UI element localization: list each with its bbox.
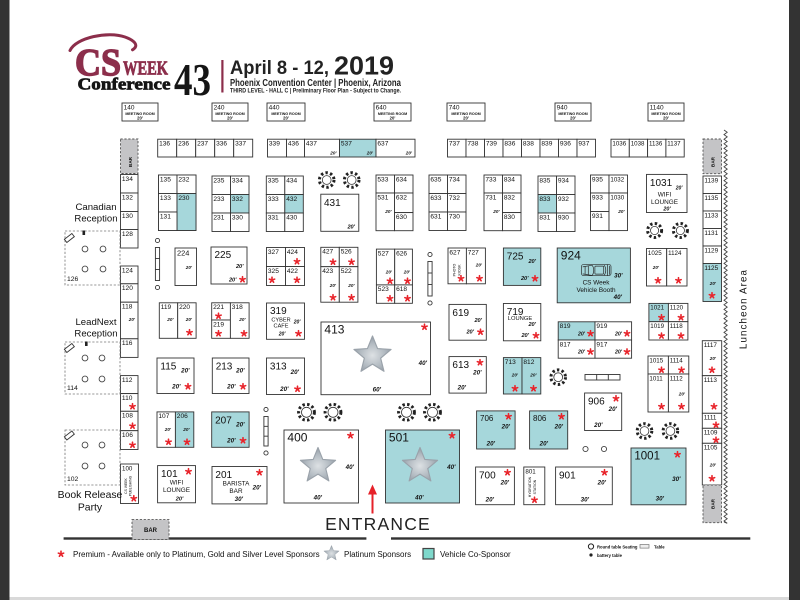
svg-text:526: 526 <box>341 249 352 256</box>
svg-text:HYDRATION: HYDRATION <box>528 476 532 497</box>
svg-text:732: 732 <box>449 195 460 202</box>
svg-text:20': 20' <box>465 330 474 336</box>
svg-text:BAR: BAR <box>711 498 716 509</box>
svg-text:20': 20' <box>164 427 172 432</box>
svg-text:20': 20' <box>709 356 717 361</box>
svg-text:CYBER: CYBER <box>271 318 290 324</box>
svg-text:LOUNGE: LOUNGE <box>651 199 678 206</box>
svg-text:336: 336 <box>216 141 227 148</box>
svg-text:1129: 1129 <box>704 247 718 254</box>
svg-text:334: 334 <box>232 177 243 184</box>
svg-text:917: 917 <box>596 341 607 348</box>
svg-text:834: 834 <box>504 176 515 183</box>
svg-text:700: 700 <box>479 471 496 482</box>
svg-text:501: 501 <box>389 431 409 445</box>
svg-text:20': 20' <box>171 384 181 391</box>
svg-text:522: 522 <box>341 268 352 275</box>
svg-text:30': 30' <box>614 273 623 280</box>
svg-text:20': 20' <box>709 463 717 468</box>
svg-text:20': 20' <box>226 438 236 445</box>
svg-text:106: 106 <box>122 432 133 439</box>
svg-text:Canadian: Canadian <box>75 202 116 213</box>
svg-text:618: 618 <box>396 286 407 293</box>
svg-text:1019: 1019 <box>650 323 664 330</box>
svg-text:836: 836 <box>504 141 515 148</box>
svg-text:937: 937 <box>578 141 589 148</box>
svg-text:134: 134 <box>122 176 133 183</box>
svg-text:20': 20' <box>570 116 576 121</box>
svg-text:20': 20' <box>235 368 245 375</box>
svg-text:537: 537 <box>341 141 352 148</box>
svg-text:1021: 1021 <box>650 305 664 312</box>
svg-text:935: 935 <box>592 176 603 183</box>
svg-text:833: 833 <box>539 196 550 203</box>
svg-text:Reception: Reception <box>74 329 117 340</box>
svg-text:20': 20' <box>554 424 564 431</box>
svg-text:100: 100 <box>122 466 133 473</box>
svg-text:Conference: Conference <box>78 75 171 94</box>
svg-text:1136: 1136 <box>649 141 663 148</box>
svg-text:1031: 1031 <box>650 178 673 189</box>
svg-text:831: 831 <box>539 214 550 221</box>
svg-text:237: 237 <box>197 141 208 148</box>
svg-text:30': 30' <box>235 496 244 503</box>
svg-text:20': 20' <box>384 209 392 214</box>
svg-text:BAR: BAR <box>711 156 716 167</box>
svg-text:440: 440 <box>269 105 280 112</box>
svg-text:20': 20' <box>137 116 143 121</box>
svg-text:1112: 1112 <box>670 375 683 382</box>
svg-text:133: 133 <box>160 195 171 202</box>
svg-text:533: 533 <box>377 176 388 183</box>
svg-text:130: 130 <box>122 213 133 220</box>
svg-text:20': 20' <box>475 263 483 268</box>
svg-text:STATION: STATION <box>533 479 537 494</box>
svg-text:1114: 1114 <box>670 357 683 364</box>
svg-text:KIOSK: KIOSK <box>458 264 462 276</box>
svg-text:1125: 1125 <box>704 265 718 272</box>
svg-text:906: 906 <box>588 397 605 408</box>
svg-text:632: 632 <box>396 194 407 201</box>
svg-text:531: 531 <box>377 194 388 201</box>
svg-text:839: 839 <box>541 141 552 148</box>
svg-text:233: 233 <box>213 196 224 203</box>
svg-text:232: 232 <box>178 176 189 183</box>
svg-text:20': 20' <box>577 350 586 356</box>
svg-text:20': 20' <box>128 317 136 322</box>
svg-text:339: 339 <box>269 141 280 148</box>
svg-text:20': 20' <box>529 373 537 378</box>
svg-text:634: 634 <box>396 176 407 183</box>
svg-text:20': 20' <box>235 264 244 270</box>
svg-text:battery table: battery table <box>597 553 623 558</box>
svg-text:213: 213 <box>216 362 233 373</box>
svg-text:PUBLISHING: PUBLISHING <box>128 475 132 496</box>
svg-text:1135: 1135 <box>704 195 718 202</box>
svg-text:1036: 1036 <box>612 141 626 148</box>
svg-text:20': 20' <box>390 116 396 121</box>
svg-text:431: 431 <box>324 198 341 209</box>
svg-text:30': 30' <box>656 496 665 503</box>
svg-text:40': 40' <box>613 294 623 301</box>
svg-text:224: 224 <box>177 249 189 258</box>
svg-text:Vehicle Booth: Vehicle Booth <box>576 287 616 294</box>
svg-text:20': 20' <box>227 116 233 121</box>
svg-text:931: 931 <box>592 213 603 220</box>
svg-text:731: 731 <box>485 194 496 201</box>
svg-text:1120: 1120 <box>670 305 684 312</box>
svg-text:335: 335 <box>268 177 279 184</box>
svg-text:727: 727 <box>468 249 479 256</box>
svg-text:830: 830 <box>504 214 515 221</box>
svg-text:1032: 1032 <box>610 176 624 183</box>
svg-text:235: 235 <box>213 177 224 184</box>
svg-text:40': 40' <box>418 360 428 367</box>
svg-text:Round table Seating: Round table Seating <box>597 545 638 550</box>
svg-text:Platinum Sponsors: Platinum Sponsors <box>344 550 411 559</box>
svg-text:107: 107 <box>158 413 169 420</box>
svg-text:631: 631 <box>430 213 441 220</box>
svg-text:20': 20' <box>617 209 625 214</box>
svg-text:120: 120 <box>122 285 133 292</box>
svg-text:20': 20' <box>235 422 245 429</box>
svg-text:20': 20' <box>485 497 495 504</box>
svg-text:835: 835 <box>539 177 550 184</box>
svg-text:1117: 1117 <box>704 342 718 349</box>
svg-text:ENTRANCE: ENTRANCE <box>325 514 431 534</box>
svg-text:20': 20' <box>366 151 374 156</box>
svg-text:20': 20' <box>520 333 529 339</box>
svg-text:Table: Table <box>654 545 665 550</box>
svg-text:20': 20' <box>663 116 669 121</box>
svg-text:20': 20' <box>614 332 623 338</box>
svg-text:934: 934 <box>558 177 569 184</box>
svg-text:115: 115 <box>160 362 176 373</box>
svg-text:Vehicle Co-Sponsor: Vehicle Co-Sponsor <box>440 550 511 559</box>
svg-text:838: 838 <box>523 141 534 148</box>
svg-text:20': 20' <box>527 322 536 328</box>
svg-text:207: 207 <box>215 415 232 426</box>
svg-text:20': 20' <box>226 384 236 391</box>
svg-text:230: 230 <box>178 195 189 202</box>
svg-text:2019: 2019 <box>334 53 394 81</box>
svg-text:20': 20' <box>403 270 411 275</box>
svg-text:1109: 1109 <box>704 430 718 437</box>
svg-text:20': 20' <box>472 370 482 377</box>
svg-text:706: 706 <box>480 414 494 423</box>
svg-text:CS WEEK: CS WEEK <box>124 477 128 493</box>
svg-text:325: 325 <box>268 268 279 275</box>
svg-text:430: 430 <box>286 214 297 221</box>
svg-text:20': 20' <box>283 116 289 121</box>
svg-text:118: 118 <box>122 304 133 311</box>
svg-text:Luncheon Area: Luncheon Area <box>739 269 750 349</box>
svg-text:225: 225 <box>215 250 232 261</box>
svg-text:240: 240 <box>214 105 225 112</box>
svg-text:313: 313 <box>270 362 287 373</box>
svg-text:413: 413 <box>324 323 344 337</box>
svg-text:20': 20' <box>501 424 511 431</box>
svg-text:901: 901 <box>559 471 576 482</box>
svg-text:20': 20' <box>347 283 355 288</box>
svg-text:20': 20' <box>608 406 618 413</box>
svg-text:136: 136 <box>159 141 170 148</box>
svg-text:1140: 1140 <box>650 105 664 112</box>
svg-text:613: 613 <box>452 360 469 371</box>
svg-text:40': 40' <box>313 495 323 502</box>
svg-text:119: 119 <box>161 304 172 311</box>
svg-text:20': 20' <box>662 207 671 213</box>
svg-text:434: 434 <box>286 177 297 184</box>
svg-text:930: 930 <box>558 214 569 221</box>
svg-text:124: 124 <box>122 267 133 274</box>
svg-text:221: 221 <box>213 304 224 311</box>
svg-text:733: 733 <box>485 176 496 183</box>
svg-text:330: 330 <box>232 214 243 221</box>
svg-text:20': 20' <box>527 259 536 265</box>
svg-text:110: 110 <box>122 395 133 402</box>
svg-text:1124: 1124 <box>668 250 682 257</box>
svg-text:20': 20' <box>385 270 393 275</box>
svg-text:20': 20' <box>180 368 190 375</box>
svg-text:Premium - Available only to Pl: Premium - Available only to Platinum, Go… <box>73 550 320 559</box>
svg-text:1025: 1025 <box>648 250 662 257</box>
svg-text:1001: 1001 <box>634 451 660 463</box>
svg-text:333: 333 <box>268 196 279 203</box>
svg-text:220: 220 <box>179 304 190 311</box>
svg-text:319: 319 <box>270 306 287 317</box>
svg-text:932: 932 <box>558 196 569 203</box>
svg-text:20': 20' <box>463 116 469 121</box>
svg-text:LeadNext: LeadNext <box>75 317 116 328</box>
svg-text:132: 132 <box>122 194 133 201</box>
svg-text:819: 819 <box>560 323 571 330</box>
svg-text:20': 20' <box>511 373 519 378</box>
svg-text:1113: 1113 <box>704 377 718 384</box>
svg-text:523: 523 <box>378 286 389 293</box>
svg-text:108: 108 <box>122 413 133 420</box>
svg-text:713: 713 <box>505 359 516 366</box>
svg-text:131: 131 <box>160 213 171 220</box>
svg-text:1131: 1131 <box>704 230 718 237</box>
svg-text:635: 635 <box>430 176 441 183</box>
svg-text:WIFI: WIFI <box>658 192 672 199</box>
svg-text:20': 20' <box>486 441 496 448</box>
svg-text:1133: 1133 <box>704 212 718 219</box>
svg-text:817: 817 <box>560 341 571 348</box>
svg-text:400: 400 <box>287 431 307 445</box>
svg-text:801: 801 <box>525 468 536 475</box>
svg-text:740: 740 <box>449 105 460 112</box>
svg-text:20': 20' <box>278 332 287 338</box>
svg-text:1105: 1105 <box>704 445 718 452</box>
svg-text:20': 20' <box>329 283 337 288</box>
svg-text:126: 126 <box>67 276 79 283</box>
svg-text:20': 20' <box>614 350 623 356</box>
svg-text:627: 627 <box>449 249 460 256</box>
svg-text:20': 20' <box>290 369 300 376</box>
svg-text:1038: 1038 <box>631 141 645 148</box>
svg-text:626: 626 <box>396 250 407 257</box>
svg-text:116: 116 <box>122 340 133 347</box>
svg-text:BAR: BAR <box>144 528 158 534</box>
svg-text:527: 527 <box>378 250 389 257</box>
svg-text:432: 432 <box>286 196 297 203</box>
svg-text:318: 318 <box>232 304 243 311</box>
svg-text:THIRD LEVEL - HALL C | Preli: THIRD LEVEL - HALL C | Preliminary Floor… <box>230 88 401 95</box>
svg-text:Reception: Reception <box>74 214 117 225</box>
svg-text:CAFE: CAFE <box>274 324 289 330</box>
svg-text:940: 940 <box>557 105 568 112</box>
svg-text:919: 919 <box>596 323 607 330</box>
svg-text:40': 40' <box>446 464 456 471</box>
svg-text:20': 20' <box>175 497 184 503</box>
svg-text:114: 114 <box>67 385 78 392</box>
svg-text:1137: 1137 <box>667 141 681 148</box>
svg-text:140: 140 <box>124 105 135 112</box>
svg-text:201: 201 <box>215 470 232 481</box>
svg-text:1139: 1139 <box>704 177 718 184</box>
svg-text:231: 231 <box>213 214 224 221</box>
svg-text:738: 738 <box>467 141 478 148</box>
svg-text:1111: 1111 <box>704 415 717 422</box>
svg-text:436: 436 <box>288 141 299 148</box>
svg-text:PHOTO: PHOTO <box>453 263 457 276</box>
svg-text:832: 832 <box>504 194 515 201</box>
svg-text:20': 20' <box>597 480 607 487</box>
svg-text:206: 206 <box>177 413 188 420</box>
svg-text:20': 20' <box>652 265 660 270</box>
svg-text:43: 43 <box>174 55 211 105</box>
svg-text:BAR: BAR <box>229 488 243 495</box>
svg-text:737: 737 <box>449 141 460 148</box>
svg-text:734: 734 <box>449 176 460 183</box>
svg-text:812: 812 <box>523 359 534 366</box>
svg-text:20': 20' <box>293 320 302 326</box>
svg-text:637: 637 <box>377 141 388 148</box>
svg-text:331: 331 <box>268 214 279 221</box>
svg-text:20': 20' <box>457 385 467 392</box>
svg-text:806: 806 <box>533 414 547 423</box>
svg-text:20': 20' <box>539 441 549 448</box>
svg-text:20': 20' <box>577 332 586 338</box>
svg-text:40': 40' <box>414 495 424 502</box>
svg-text:1118: 1118 <box>670 323 683 330</box>
svg-text:630: 630 <box>396 214 407 221</box>
svg-text:Party: Party <box>78 503 103 514</box>
svg-text:LOUNGE: LOUNGE <box>163 487 190 494</box>
svg-text:20': 20' <box>709 281 717 286</box>
svg-text:112: 112 <box>122 377 133 384</box>
svg-text:619: 619 <box>452 308 469 319</box>
svg-text:20': 20' <box>405 151 413 156</box>
svg-text:20': 20' <box>185 265 193 270</box>
svg-text:422: 422 <box>287 268 298 275</box>
svg-text:April 8 - 12,: April 8 - 12, <box>230 58 329 79</box>
svg-text:933: 933 <box>592 194 603 201</box>
svg-text:20': 20' <box>228 278 237 284</box>
svg-text:20': 20' <box>238 317 246 322</box>
svg-text:20': 20' <box>166 317 174 322</box>
svg-text:Book Release: Book Release <box>58 490 123 501</box>
svg-text:332: 332 <box>232 196 243 203</box>
svg-text:327: 327 <box>268 249 279 256</box>
svg-text:60': 60' <box>373 387 382 394</box>
svg-text:30': 30' <box>672 476 681 483</box>
svg-text:20': 20' <box>279 386 289 393</box>
svg-text:337: 337 <box>235 141 246 148</box>
svg-text:427: 427 <box>322 249 333 256</box>
svg-text:1011: 1011 <box>649 375 663 382</box>
svg-text:WIFI: WIFI <box>170 480 184 487</box>
svg-text:20': 20' <box>346 225 355 231</box>
svg-text:30': 30' <box>581 497 590 504</box>
svg-text:1015: 1015 <box>649 357 663 364</box>
svg-text:135: 135 <box>160 176 171 183</box>
svg-text:424: 424 <box>287 249 298 256</box>
svg-text:219: 219 <box>213 321 224 328</box>
svg-text:20': 20' <box>329 151 337 156</box>
svg-text:102: 102 <box>67 476 79 483</box>
svg-text:739: 739 <box>486 141 497 148</box>
svg-text:20': 20' <box>678 392 686 397</box>
svg-text:20': 20' <box>593 422 603 429</box>
svg-text:730: 730 <box>449 213 460 220</box>
svg-text:20': 20' <box>520 276 529 282</box>
svg-text:423: 423 <box>322 268 333 275</box>
svg-text:20': 20' <box>492 209 500 214</box>
svg-text:437: 437 <box>306 141 317 148</box>
svg-text:633: 633 <box>430 195 441 202</box>
svg-text:640: 640 <box>376 105 387 112</box>
svg-text:20': 20' <box>473 318 482 324</box>
svg-text:128: 128 <box>122 231 133 238</box>
svg-text:236: 236 <box>178 141 189 148</box>
svg-text:936: 936 <box>560 141 571 148</box>
svg-text:BAR: BAR <box>128 156 133 167</box>
svg-text:725: 725 <box>507 252 524 263</box>
svg-text:20': 20' <box>500 480 510 487</box>
svg-text:CS Week: CS Week <box>583 280 611 287</box>
svg-text:924: 924 <box>561 249 581 263</box>
svg-text:20': 20' <box>252 485 262 492</box>
svg-text:20': 20' <box>185 317 193 322</box>
svg-text:1030: 1030 <box>610 194 624 201</box>
svg-text:101: 101 <box>161 469 178 480</box>
svg-text:20': 20' <box>182 427 190 432</box>
svg-text:40': 40' <box>345 464 355 471</box>
svg-text:BARISTA: BARISTA <box>223 481 251 488</box>
svg-text:20': 20' <box>675 186 684 192</box>
